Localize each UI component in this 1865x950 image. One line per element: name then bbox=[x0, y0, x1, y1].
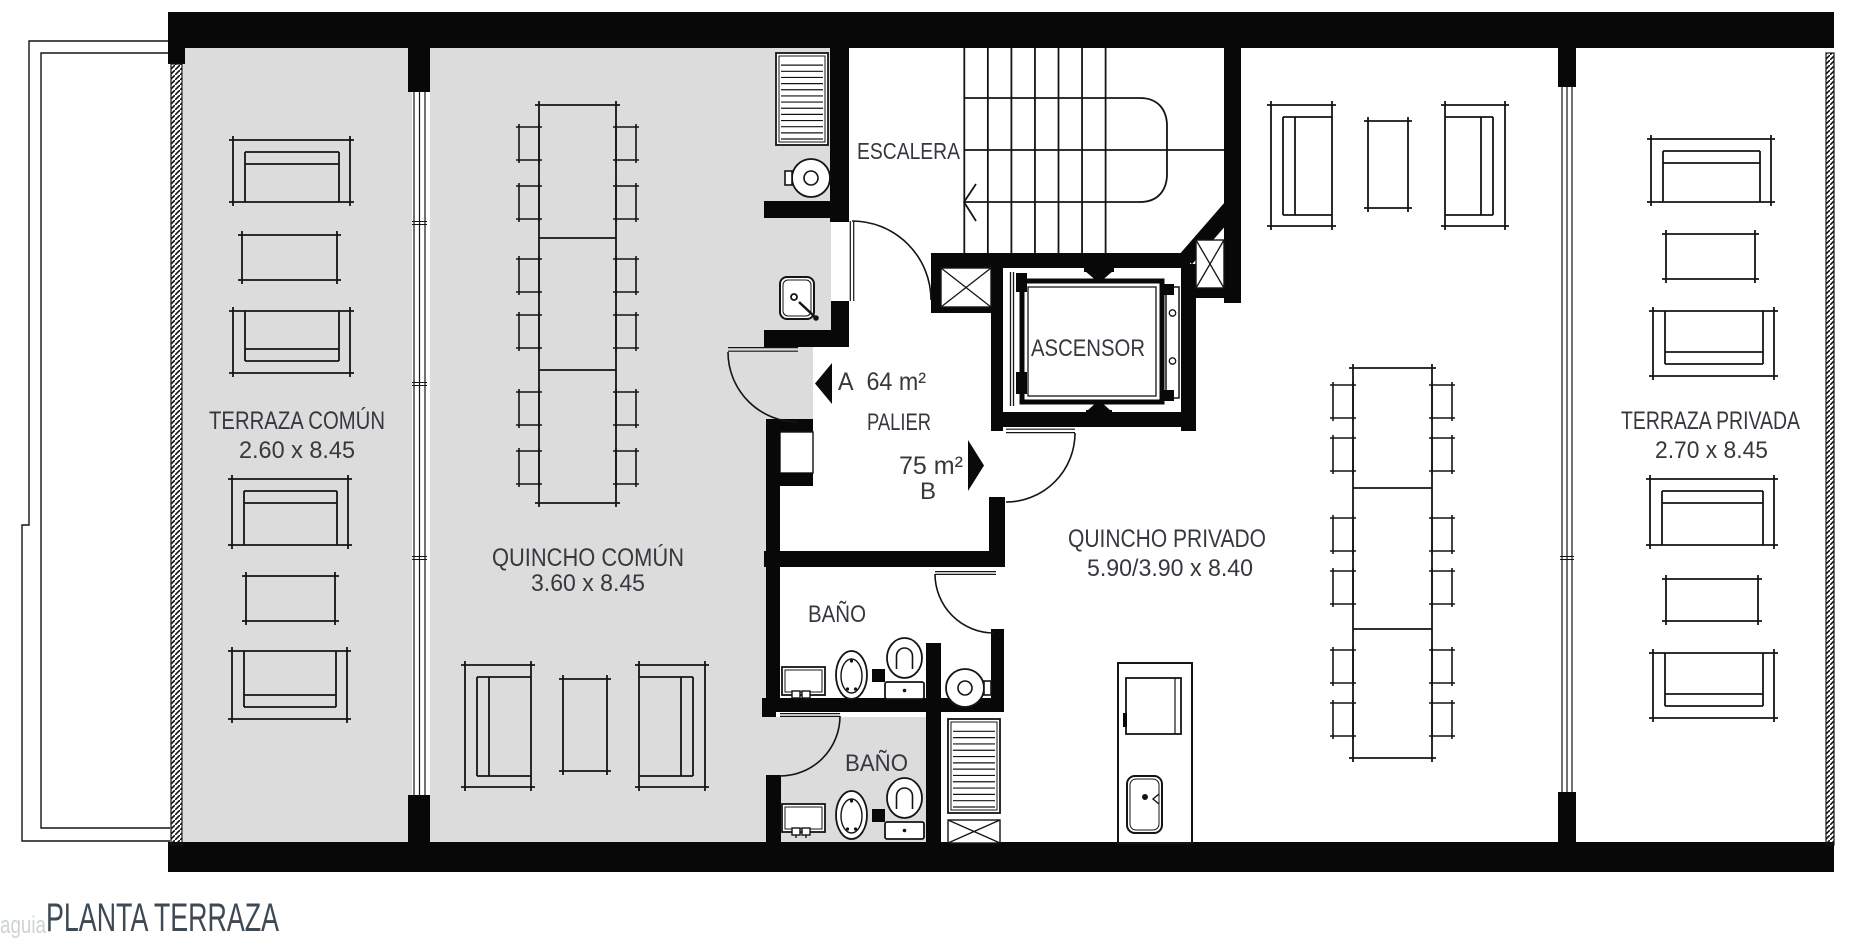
svg-text:2.70 x 8.45: 2.70 x 8.45 bbox=[1655, 437, 1768, 464]
svg-text:QUINCHO PRIVADO: QUINCHO PRIVADO bbox=[1068, 525, 1266, 553]
svg-text:2.60 x 8.45: 2.60 x 8.45 bbox=[239, 437, 355, 464]
svg-text:PLANTA TERRAZA: PLANTA TERRAZA bbox=[46, 896, 279, 940]
svg-text:ESCALERA: ESCALERA bbox=[857, 138, 961, 164]
svg-text:5.90/3.90 x 8.40: 5.90/3.90 x 8.40 bbox=[1087, 555, 1253, 582]
svg-text:TERRAZA PRIVADA: TERRAZA PRIVADA bbox=[1621, 407, 1800, 435]
svg-text:aguia: aguia bbox=[0, 912, 47, 939]
svg-text:75 m²: 75 m² bbox=[899, 452, 963, 480]
svg-text:3.60 x 8.45: 3.60 x 8.45 bbox=[531, 570, 645, 597]
svg-text:QUINCHO COMÚN: QUINCHO COMÚN bbox=[492, 543, 684, 572]
svg-text:A 64 m²: A 64 m² bbox=[838, 368, 926, 396]
svg-text:ASCENSOR: ASCENSOR bbox=[1031, 335, 1145, 362]
svg-text:BAÑO: BAÑO bbox=[808, 601, 866, 628]
svg-text:PALIER: PALIER bbox=[867, 409, 931, 436]
svg-text:TERRAZA COMÚN: TERRAZA COMÚN bbox=[209, 406, 385, 435]
svg-text:B: B bbox=[920, 478, 936, 505]
svg-text:BAÑO: BAÑO bbox=[845, 750, 908, 777]
